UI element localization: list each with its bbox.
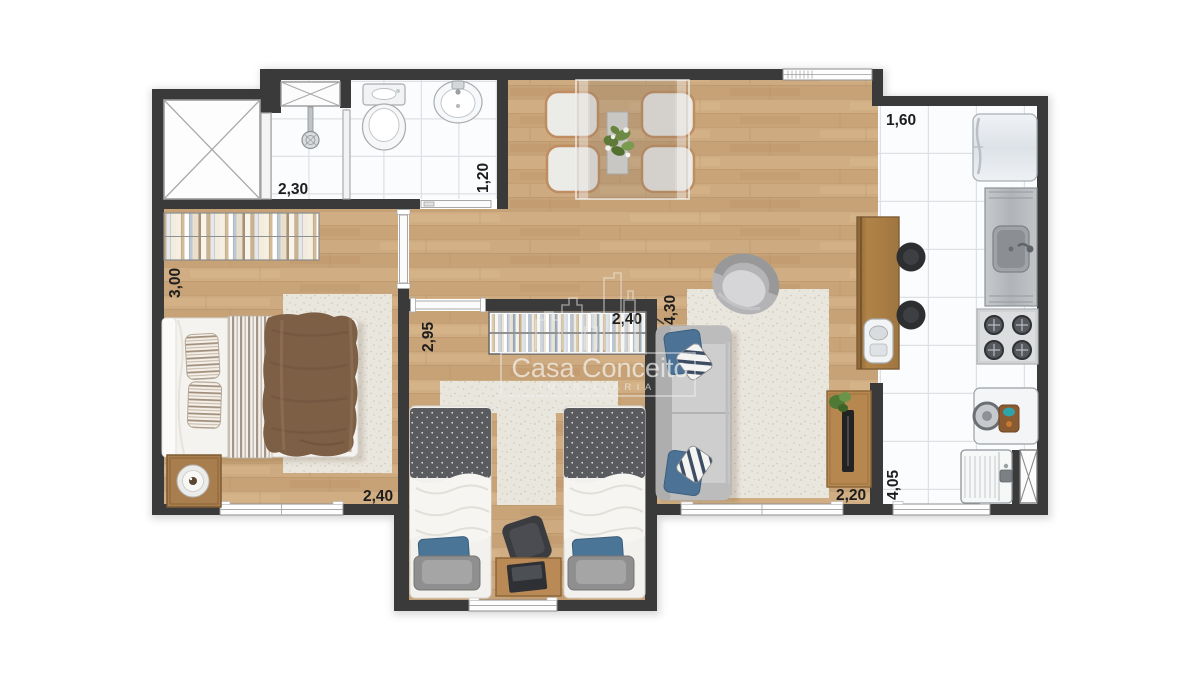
svg-text:2,40: 2,40 (363, 488, 393, 505)
svg-text:2,30: 2,30 (278, 181, 308, 198)
svg-text:Casa Conceito: Casa Conceito (511, 353, 688, 383)
svg-text:4,30: 4,30 (662, 295, 679, 325)
svg-text:3,00: 3,00 (167, 268, 184, 298)
svg-text:IMOBILIARIA: IMOBILIARIA (539, 382, 657, 393)
svg-text:2,40: 2,40 (612, 311, 642, 328)
svg-text:4,05: 4,05 (885, 469, 902, 500)
svg-text:2,20: 2,20 (836, 487, 866, 504)
svg-text:2,95: 2,95 (420, 321, 437, 352)
svg-text:1,20: 1,20 (475, 163, 492, 193)
svg-text:1,60: 1,60 (886, 112, 916, 129)
